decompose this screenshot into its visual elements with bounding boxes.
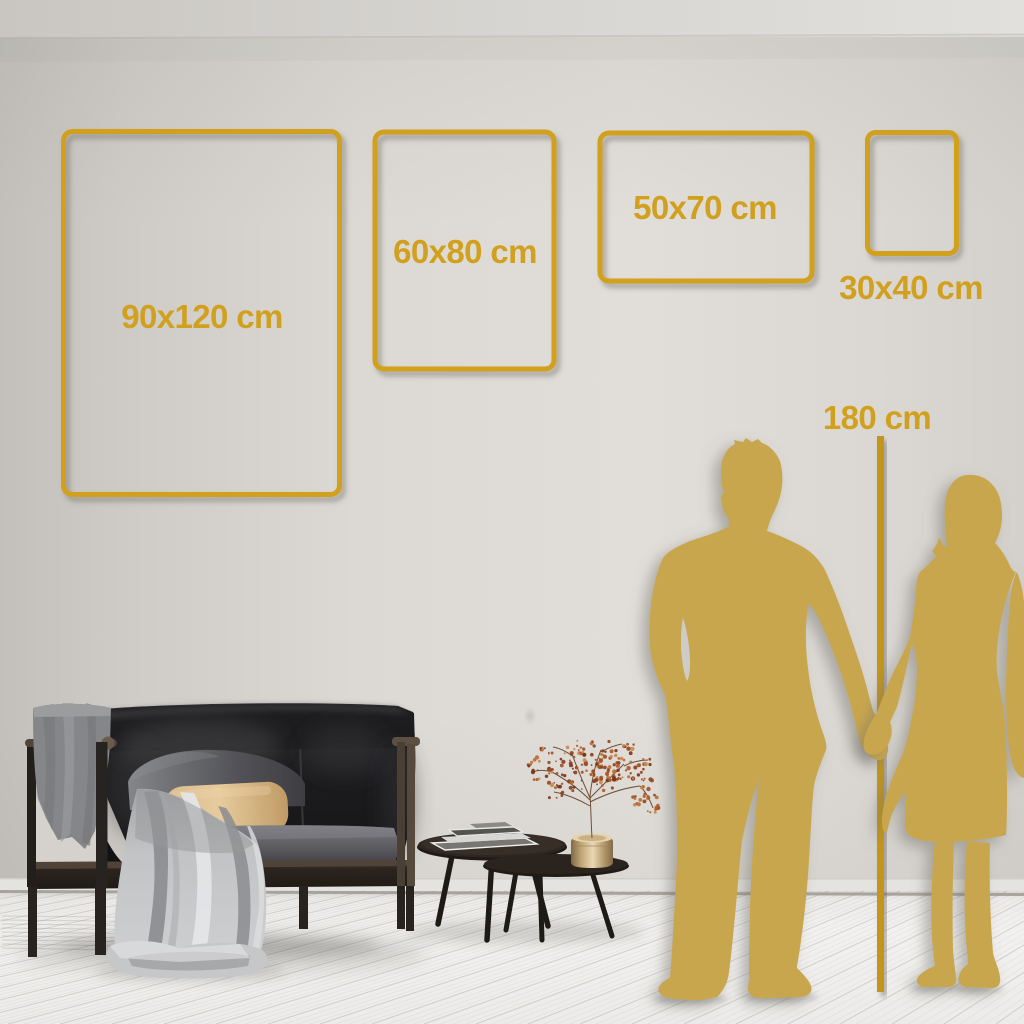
svg-text:90x120 cm: 90x120 cm — [121, 298, 283, 335]
svg-text:60x80 cm: 60x80 cm — [393, 233, 537, 270]
svg-text:180 cm: 180 cm — [823, 399, 931, 436]
svg-text:50x70 cm: 50x70 cm — [633, 189, 777, 226]
svg-text:30x40 cm: 30x40 cm — [839, 269, 983, 306]
